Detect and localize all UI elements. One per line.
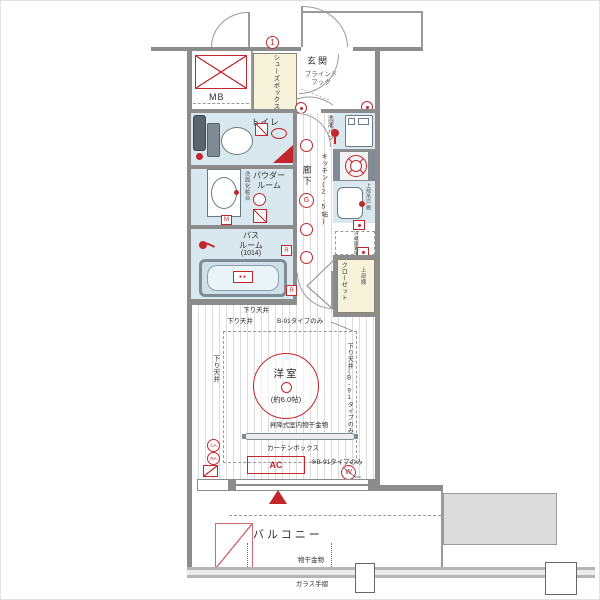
label-type-note: ※B-91タイプのみ	[311, 459, 363, 467]
wall	[151, 47, 301, 51]
label-closet: クローゼット	[339, 262, 346, 301]
remote-symbol: R	[281, 245, 292, 256]
water-heater-icon	[193, 115, 206, 151]
washer-dial	[348, 118, 355, 125]
window-rail	[235, 484, 369, 486]
gas-symbol: G	[299, 193, 314, 208]
light-symbol	[281, 382, 292, 393]
label-room-name: 洋室	[274, 368, 299, 381]
mb-door-leaf	[248, 12, 250, 47]
remote-symbol: R	[286, 285, 297, 296]
mirror-symbol: M	[221, 215, 232, 225]
label-dropped-ceiling-note-l: 下り天井	[227, 318, 253, 326]
vent-symbol	[271, 128, 287, 139]
downlight-symbol	[300, 251, 313, 264]
meter-box-icon	[195, 55, 247, 89]
label-glass-rail: ガラス手摺	[277, 581, 347, 589]
faucet-icon	[331, 129, 339, 137]
toilet-bowl-icon	[221, 127, 253, 155]
burner-icon	[345, 155, 367, 177]
hoist-bar-end	[354, 434, 358, 439]
waterproof-outlet-symbol: W	[341, 465, 356, 480]
balcony-limit-line	[229, 515, 441, 516]
window	[197, 479, 229, 491]
mb-door-arc	[211, 12, 248, 47]
ac-box: AC	[247, 456, 305, 474]
entrance-inner-door-arc	[299, 54, 339, 94]
label-bath-2: ルーム	[239, 241, 263, 251]
label-mb: MB	[209, 92, 225, 103]
glass-railing-line	[187, 575, 595, 578]
downlight-symbol	[300, 139, 313, 152]
label-hoist: 昇降式室内物干金物	[239, 422, 359, 430]
label-closet-shelf: 上部棚	[359, 267, 366, 285]
faucet-icon	[234, 190, 239, 195]
label-powder-1: パウダー	[253, 171, 285, 181]
light-symbol	[253, 209, 267, 223]
railing-post	[545, 562, 577, 595]
railing-post	[355, 563, 375, 593]
label-room-size: (約6.0帖)	[271, 395, 301, 404]
floor-marker-symbol: 1	[266, 36, 279, 49]
label-dropped-ceiling-left: 下り天井	[211, 355, 219, 383]
label-upper-cabinet: 上部吊戸棚	[365, 183, 371, 211]
washer-panel	[358, 118, 369, 125]
wall-right	[375, 47, 380, 491]
label-corridor: 廊下	[301, 165, 312, 187]
hoist-bar-end	[242, 434, 246, 439]
room-name-circle: 洋室 (約6.0帖)	[253, 353, 319, 419]
label-powder-room: パウダー ルーム	[247, 171, 291, 190]
floor-plan: 1 MB シューズボックス 玄関 ブラインド フック トイレ M 洗面化粧台	[0, 0, 600, 600]
wall	[375, 485, 443, 491]
toilet-tank-icon	[207, 123, 220, 157]
light-symbol	[255, 123, 268, 136]
label-drying-fixture: 物干金物	[281, 557, 341, 565]
window-lock-symbol	[203, 465, 218, 477]
hoist-bar-icon	[245, 433, 355, 440]
wall	[333, 313, 375, 317]
dashed-line	[193, 103, 249, 104]
label-kitchen: キッチン(2.5帖)	[319, 153, 327, 226]
adjacent-structure	[443, 493, 557, 545]
bath-control-symbol: ●●	[233, 271, 253, 283]
label-curtain-box: カーテンボックス	[249, 445, 337, 453]
shoes-box: シューズボックス	[253, 53, 297, 111]
faucet-icon	[196, 153, 203, 160]
label-dropped-ceiling-top: 下り天井	[243, 307, 269, 315]
building-edge-line	[421, 11, 423, 49]
label-dropped-ceiling-note-r: B-91タイプのみ	[277, 318, 323, 326]
stove-rail	[369, 151, 375, 181]
label-shoes-box: シューズボックス	[271, 54, 279, 110]
faucet-stem	[334, 137, 336, 144]
marker-triangle	[269, 490, 287, 504]
label-bath-1: バス	[243, 231, 259, 241]
downlight-symbol	[253, 193, 266, 206]
label-bath-size: (1014)	[241, 250, 261, 258]
downlight-symbol	[300, 223, 313, 236]
remote-symbol	[353, 220, 365, 230]
label-balcony: バルコニー	[253, 529, 323, 542]
label-bathroom: バス ルーム (1014)	[225, 231, 277, 259]
wall	[353, 47, 423, 51]
label-powder-2: ルーム	[257, 181, 281, 191]
supply-air-symbol: CA	[207, 439, 220, 452]
return-air-symbol: RA	[207, 452, 220, 465]
